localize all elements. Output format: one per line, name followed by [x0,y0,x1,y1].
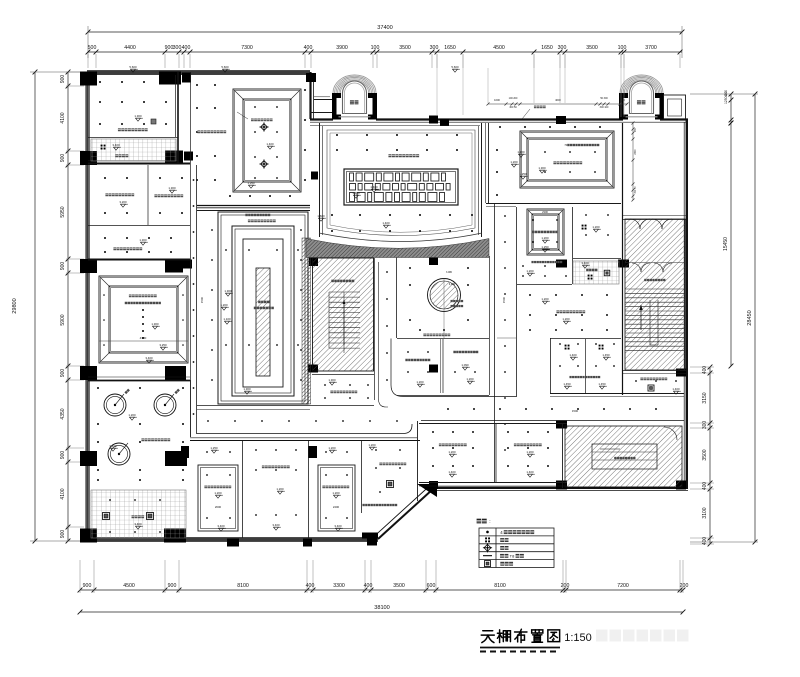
svg-text:600: 600 [427,583,436,589]
svg-text:4380: 4380 [140,336,147,340]
svg-text:1.200: 1.200 [128,413,136,417]
svg-text:1.200: 1.200 [526,450,534,454]
svg-text:1.200: 1.200 [541,297,549,301]
svg-text:7300: 7300 [241,45,253,51]
svg-text:1.300: 1.300 [151,322,159,326]
svg-text:1.200: 1.200 [214,491,222,495]
svg-text:1.300: 1.300 [134,114,142,118]
svg-text:1.200: 1.200 [368,443,376,447]
svg-text:1500: 1500 [502,296,506,303]
svg-text:2600: 2600 [635,149,637,155]
svg-text:3500: 3500 [586,45,598,51]
svg-text:4500: 4500 [493,45,505,51]
svg-text:1.450: 1.450 [563,382,571,386]
svg-text:2400: 2400 [333,505,340,509]
svg-text:3.400: 3.400 [272,523,280,527]
svg-text:3.400: 3.400 [109,444,117,448]
svg-text:3.400: 3.400 [112,143,120,147]
svg-text:1.300: 1.300 [168,186,176,190]
svg-text:37400: 37400 [377,25,393,31]
svg-text:4350: 4350 [60,408,66,419]
svg-text:1.200: 1.200 [592,225,600,229]
svg-text:T8: T8 [510,553,515,558]
svg-text:300: 300 [558,45,567,51]
svg-text:1.300: 1.300 [538,166,546,170]
svg-text:3.400: 3.400 [217,524,225,528]
svg-text:1.200: 1.200 [332,491,340,495]
svg-text:1.300: 1.300 [139,238,147,242]
svg-text:5.600: 5.600 [221,65,229,69]
svg-text:29800: 29800 [12,298,18,314]
svg-text:1.200: 1.200 [328,446,336,450]
svg-text:3.400: 3.400 [581,261,589,265]
svg-text:4400: 4400 [124,45,136,51]
svg-text:1.200: 1.200 [416,380,424,384]
svg-text:3700: 3700 [645,45,657,51]
svg-text:1.300: 1.300 [243,387,251,391]
svg-text:1.090: 1.090 [461,363,469,367]
svg-text:3900: 3900 [336,45,348,51]
svg-text:1.400: 1.400 [672,387,680,391]
svg-text:7200: 7200 [617,583,629,589]
svg-text:1650: 1650 [541,45,553,51]
svg-text:1.400: 1.400 [352,191,360,195]
svg-text:400: 400 [182,45,191,51]
svg-text:3500: 3500 [399,45,411,51]
svg-text:300 50: 300 50 [509,106,517,109]
svg-text:3500: 3500 [702,449,708,460]
svg-text:5.600: 5.600 [129,65,137,69]
svg-text:1.400: 1.400 [569,353,577,357]
svg-text:28450: 28450 [747,310,753,326]
svg-text:3500: 3500 [393,583,405,589]
svg-text:1.400: 1.400 [370,185,378,189]
svg-text:1.400: 1.400 [382,221,390,225]
svg-text:900: 900 [60,154,66,163]
svg-text:3.400: 3.400 [134,522,142,526]
svg-text:1.400: 1.400 [448,470,456,474]
svg-text:300: 300 [621,99,626,102]
svg-text:200: 200 [680,583,689,589]
svg-text:300: 300 [430,45,439,51]
svg-text:100 200: 100 200 [509,97,518,100]
svg-text:1.200: 1.200 [448,450,456,454]
svg-text:1.200: 1.200 [276,487,284,491]
svg-text:900: 900 [83,583,92,589]
svg-text:5900: 5900 [60,314,66,325]
svg-text:3.080: 3.080 [449,282,456,286]
svg-text:1.250: 1.250 [541,245,549,249]
svg-text:1.250: 1.250 [210,446,218,450]
svg-text:100: 100 [371,45,380,51]
svg-text:3.400: 3.400 [334,524,342,528]
svg-text:1.100: 1.100 [223,317,231,321]
svg-text:1.200: 1.200 [220,303,228,307]
svg-text:500: 500 [88,45,97,51]
svg-text:4100: 4100 [60,488,66,499]
svg-text:15450: 15450 [723,237,729,251]
svg-text:38100: 38100 [374,605,390,611]
svg-text::: : [489,519,490,525]
svg-text:2600: 2600 [215,505,222,509]
svg-text:1.200: 1.200 [466,377,474,381]
svg-text:1250 200: 1250 200 [724,90,728,104]
svg-text:1.450: 1.450 [602,353,610,357]
svg-text:1.250: 1.250 [519,172,527,176]
svg-text:1.350: 1.350 [247,181,255,185]
svg-text:1.200: 1.200 [526,269,534,273]
svg-text:1.400: 1.400 [526,470,534,474]
svg-text:900: 900 [60,75,66,84]
svg-text:50 300: 50 300 [600,97,608,100]
svg-text:1.300: 1.300 [224,289,232,293]
svg-text:4100: 4100 [60,112,66,123]
svg-text:4600: 4600 [555,98,561,102]
svg-text:1.400: 1.400 [266,142,274,146]
svg-text:1.200: 1.200 [510,160,518,164]
svg-text:1.200: 1.200 [541,236,549,240]
svg-text:3.200: 3.200 [119,200,127,204]
svg-text:3.080: 3.080 [446,271,453,274]
svg-text:3300: 3300 [333,583,345,589]
svg-text:1650: 1650 [444,45,456,51]
svg-text:1:150: 1:150 [564,632,592,644]
svg-text:8100: 8100 [494,583,506,589]
svg-text:1.600: 1.600 [317,214,325,218]
svg-text:300 100: 300 100 [600,106,609,109]
svg-text:5.600: 5.600 [451,65,459,69]
svg-text:2300: 2300 [542,210,548,214]
svg-text:5950: 5950 [60,206,66,217]
svg-text:1.450: 1.450 [598,382,606,386]
svg-text:4500: 4500 [123,583,135,589]
svg-text:1500: 1500 [200,296,204,303]
svg-text:1.300: 1.300 [328,378,336,382]
svg-text:3.400: 3.400 [145,356,153,360]
svg-text:1600: 1600 [494,98,500,102]
svg-text:900: 900 [60,530,66,539]
svg-text:200: 200 [561,583,570,589]
svg-text:900: 900 [60,262,66,271]
svg-text:3100: 3100 [702,507,708,518]
svg-text:100: 100 [618,45,627,51]
svg-text:1.300: 1.300 [517,150,525,154]
svg-text:3.250: 3.250 [159,343,167,347]
svg-text:1.200: 1.200 [562,317,570,321]
svg-text:900: 900 [60,451,66,460]
svg-text:400: 400 [304,45,313,51]
svg-text:300: 300 [173,45,182,51]
svg-text:900: 900 [168,583,177,589]
svg-text:900: 900 [60,369,66,378]
svg-text:1500: 1500 [572,409,579,413]
svg-text:8100: 8100 [237,583,249,589]
svg-text:3150: 3150 [702,392,708,403]
svg-text:300 50: 300 50 [635,186,637,194]
